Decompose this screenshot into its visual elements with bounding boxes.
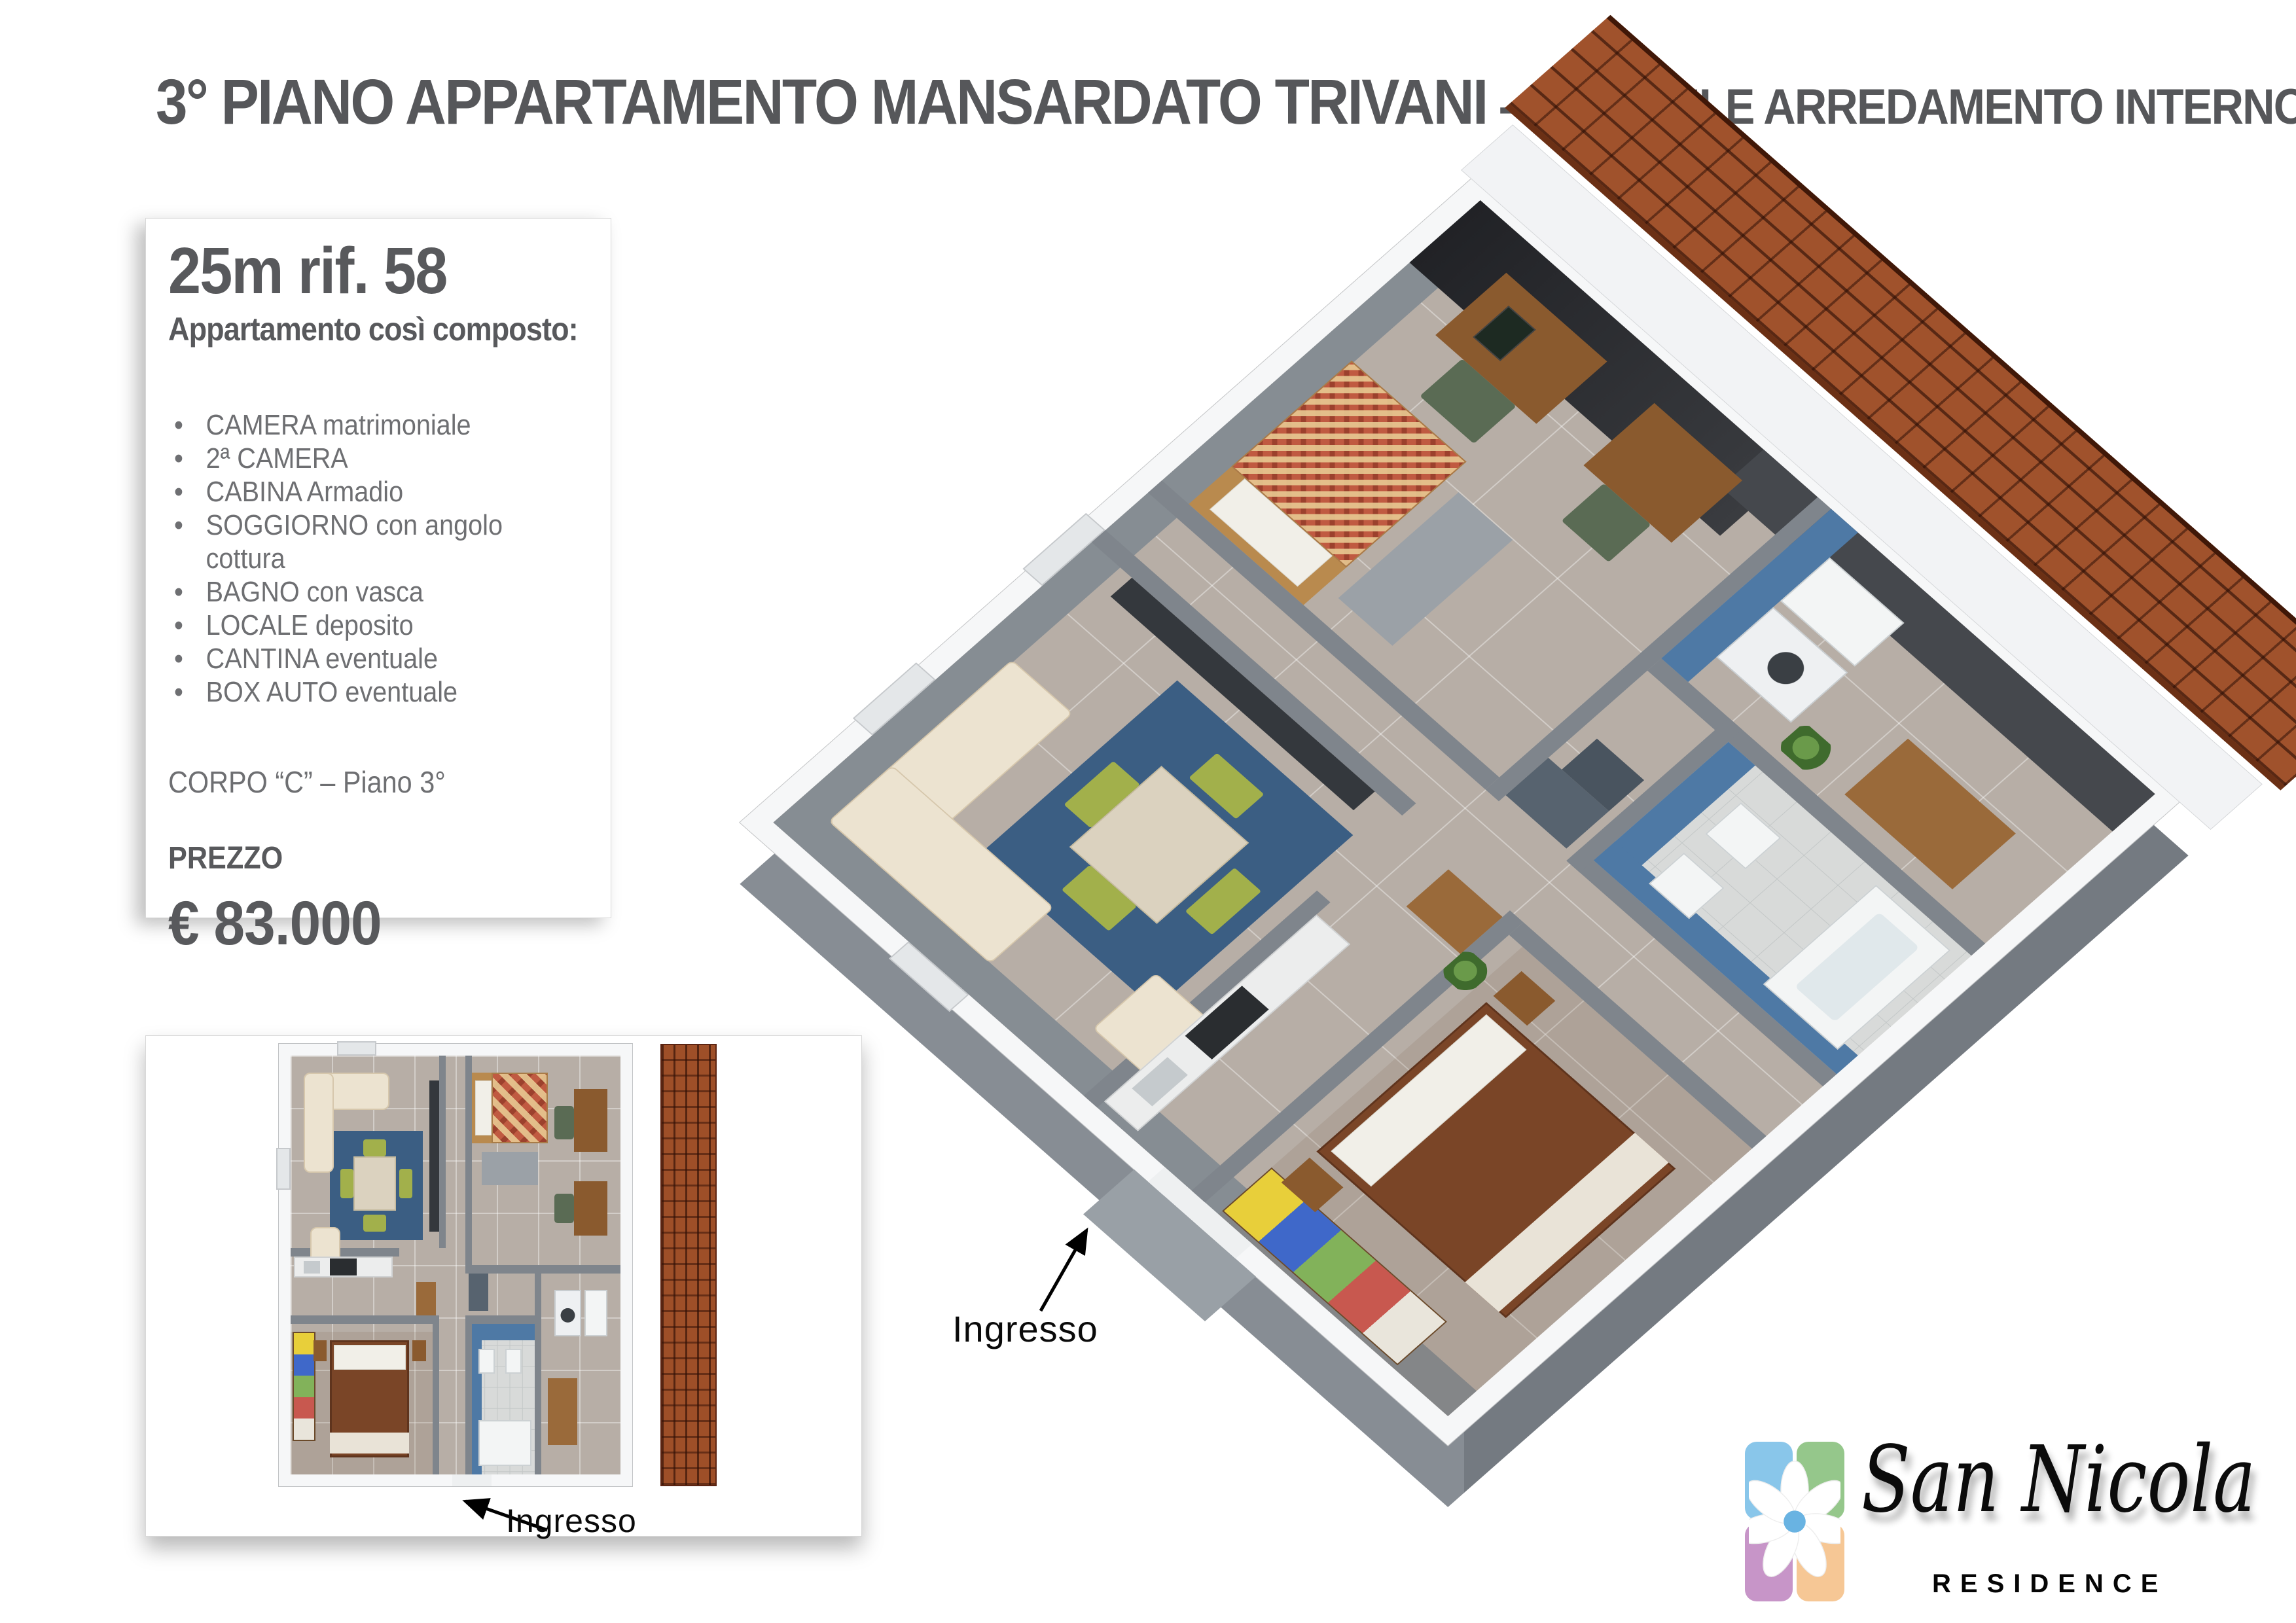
flower-icon: [1749, 1453, 1840, 1590]
building-reference: CORPO “C” – Piano 3°: [168, 764, 598, 800]
washing-machine: [554, 1290, 581, 1336]
feature-item: CABINA Armadio: [168, 475, 560, 508]
bath-sink: [505, 1349, 522, 1374]
dining-table: [353, 1156, 397, 1211]
dining-chair: [363, 1215, 386, 1232]
single-bed-pillow: [475, 1080, 492, 1135]
tv-wall-unit: [429, 1080, 439, 1231]
nightstand: [314, 1340, 327, 1361]
bedroom2-rug: [482, 1152, 538, 1185]
feature-item: BOX AUTO eventuale: [168, 675, 560, 709]
roof-tiles-strip: [660, 1044, 717, 1486]
hall-cabinet: [416, 1282, 436, 1315]
wall: [433, 1324, 439, 1474]
sofa: [304, 1073, 333, 1173]
flower-center: [1784, 1510, 1806, 1533]
info-card-content: 25m rif. 58 Appartamento così composto: …: [168, 238, 598, 959]
reference-heading: 25m rif. 58: [168, 238, 598, 304]
window: [276, 1148, 291, 1190]
thumbnail-card: Ingresso: [145, 1035, 862, 1537]
entrance-label: Ingresso: [952, 1308, 1098, 1350]
laundry-sink: [584, 1290, 607, 1336]
double-bed-pillows: [334, 1345, 406, 1370]
dining-chair: [340, 1169, 353, 1198]
entrance-label: Ingresso: [506, 1502, 637, 1540]
wardrobe: [293, 1332, 315, 1440]
feature-item: CANTINA eventuale: [168, 642, 560, 675]
wall: [465, 1315, 472, 1474]
stove: [330, 1258, 356, 1275]
feature-item: SOGGIORNO con angolo cottura: [168, 508, 560, 575]
dining-chair: [363, 1139, 386, 1156]
wall: [535, 1274, 541, 1474]
wall: [291, 1315, 439, 1324]
price-label: PREZZO: [168, 840, 598, 876]
logo-residence-label: RESIDENCE: [1932, 1569, 2167, 1599]
wall: [465, 1056, 472, 1265]
desk: [574, 1089, 607, 1152]
page-title-main: 3° PIANO APPARTAMENTO MANSARDATO TRIVANI: [156, 65, 1486, 139]
wall: [465, 1315, 541, 1324]
dresser: [548, 1378, 577, 1445]
nightstand: [412, 1340, 425, 1361]
feature-list: CAMERA matrimoniale 2ª CAMERA CABINA Arm…: [168, 408, 598, 709]
desk: [574, 1181, 607, 1236]
single-bed-quilt: [492, 1073, 548, 1144]
wall: [439, 1056, 446, 1248]
toilet: [478, 1349, 495, 1374]
page-title: 3° PIANO APPARTAMENTO MANSARDATO TRIVANI…: [156, 65, 2296, 139]
plan2d-thumbnail: [279, 1044, 632, 1486]
feature-item: 2ª CAMERA: [168, 442, 560, 475]
double-bed-blanket: [330, 1433, 409, 1454]
price-value: € 83.000: [168, 888, 598, 959]
closet-cabinet: [469, 1274, 488, 1311]
feature-item: BAGNO con vasca: [168, 575, 560, 609]
window: [1022, 513, 1105, 586]
info-card: 25m rif. 58 Appartamento così composto: …: [145, 218, 611, 918]
bathtub: [478, 1420, 531, 1466]
wall: [465, 1265, 620, 1274]
wall: [291, 1248, 399, 1257]
entrance-door: [452, 1474, 492, 1486]
window: [853, 662, 936, 736]
feature-item: LOCALE deposito: [168, 609, 560, 642]
logo-name: San Nicola: [1861, 1427, 2255, 1533]
desk-chair: [554, 1106, 574, 1139]
kitchen-sink: [304, 1261, 320, 1274]
flyer-page: 3° PIANO APPARTAMENTO MANSARDATO TRIVANI…: [0, 0, 2296, 1623]
desk-chair: [554, 1194, 574, 1223]
composition-subtitle: Appartamento così composto:: [168, 310, 598, 348]
dining-chair: [399, 1169, 412, 1198]
window: [337, 1041, 376, 1056]
feature-item: CAMERA matrimoniale: [168, 408, 560, 442]
